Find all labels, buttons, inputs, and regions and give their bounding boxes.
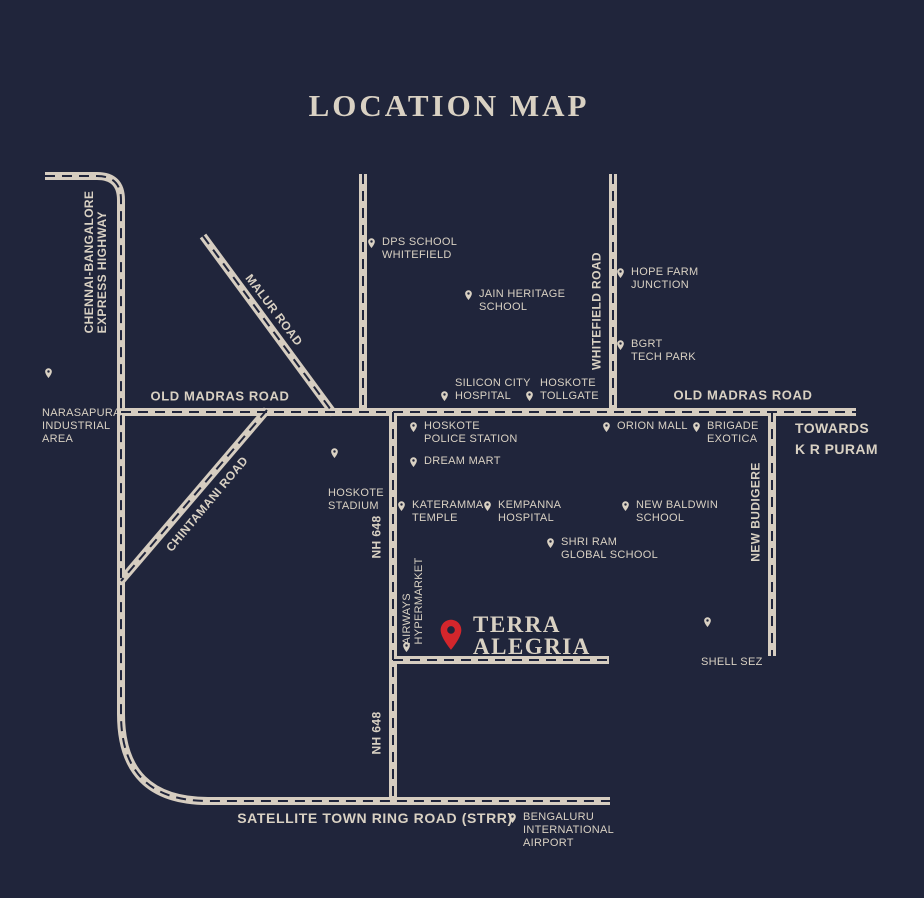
poi-dream-mart: DREAM MART [408,455,501,469]
location-pin-icon [615,266,626,280]
poi-orion-mall: ORION MALL [601,420,688,434]
poi-label: SHELL SEZ [701,656,763,669]
location-pin-icon [463,288,474,302]
location-pin-icon [439,389,450,403]
poi-label: HOSKOTE TOLLGATE [540,377,599,403]
road-label-old-madras-east: OLD MADRAS ROAD [674,388,813,403]
poi-label: DREAM MART [424,455,501,468]
poi-label: SILICON CITY HOSPITAL [455,377,531,403]
poi-kateramma-temple: KATERAMMA TEMPLE [396,499,484,525]
poi-dps-school: DPS SCHOOL WHITEFIELD [366,236,457,262]
location-pin-icon [691,420,702,434]
poi-shri-ram-global-school: SHRI RAM GLOBAL SCHOOL [545,536,658,562]
poi-label: JAIN HERITAGE SCHOOL [479,288,565,314]
poi-jain-heritage-school: JAIN HERITAGE SCHOOL [463,288,565,314]
poi-hoskote-police-station: HOSKOTE POLICE STATION [408,420,518,446]
poi-hope-farm-junction: HOPE FARM JUNCTION [615,266,699,292]
poi-label: NARASAPURA INDUSTRIAL AREA [42,407,121,446]
terra-alegria-label: TERRA ALEGRIA [473,614,591,658]
poi-label: BGRT TECH PARK [631,338,696,364]
poi-hoskote-stadium: HOSKOTE STADIUM [328,420,384,539]
poi-label: HOSKOTE POLICE STATION [424,420,518,446]
location-pin-icon [507,811,518,825]
poi-silicon-city-hospital: SILICON CITY HOSPITAL [439,377,531,403]
roads-layer [0,0,924,898]
label-towards-kr-puram: TOWARDS K R PURAM [795,418,878,460]
location-map: LOCATION MAP CHENNAI-BANGALORE EXPRESS [0,0,924,898]
poi-airways-hypermarket-label: AIRWAYS HYPERMARKET [401,557,425,644]
poi-bgrt-tech-park: BGRT TECH PARK [615,338,696,364]
road-label-new-budigere: NEW BUDIGERE [750,462,763,561]
location-pin-icon [408,420,419,434]
location-pin-icon [702,615,713,629]
location-pin-icon [620,499,631,513]
terra-alegria-pin-icon [434,611,468,658]
road-label-strr: SATELLITE TOWN RING ROAD (STRR) [237,810,513,826]
poi-label: NEW BALDWIN SCHOOL [636,499,718,525]
poi-label: HOPE FARM JUNCTION [631,266,699,292]
location-pin-icon [43,366,54,380]
poi-shell-sez: SHELL SEZ [701,589,763,695]
location-pin-icon [401,640,412,654]
location-pin-icon [615,338,626,352]
location-pin-icon [545,536,556,550]
location-pin-icon [601,420,612,434]
road-label-nh648-lower: NH 648 [371,711,384,754]
poi-label: BENGALURU INTERNATIONAL AIRPORT [523,811,614,850]
poi-label: KATERAMMA TEMPLE [412,499,484,525]
location-pin-icon [482,499,493,513]
location-pin-icon [524,389,535,403]
poi-label: ORION MALL [617,420,688,433]
poi-narasapura-industrial-area: NARASAPURA INDUSTRIAL AREA [42,340,121,472]
poi-label: SHRI RAM GLOBAL SCHOOL [561,536,658,562]
poi-hoskote-tollgate: HOSKOTE TOLLGATE [524,377,599,403]
road-label-old-madras-west: OLD MADRAS ROAD [151,389,290,404]
poi-kempanna-hospital: KEMPANNA HOSPITAL [482,499,561,525]
poi-label: KEMPANNA HOSPITAL [498,499,561,525]
location-pin-icon [396,499,407,513]
poi-label: DPS SCHOOL WHITEFIELD [382,236,457,262]
road-label-whitefield: WHITEFIELD ROAD [591,252,604,370]
location-pin-icon [329,446,340,460]
poi-label: HOSKOTE STADIUM [328,487,384,513]
poi-brigade-exotica: BRIGADE EXOTICA [691,420,759,446]
poi-new-baldwin-school: NEW BALDWIN SCHOOL [620,499,718,525]
location-pin-icon [408,455,419,469]
poi-label: BRIGADE EXOTICA [707,420,759,446]
location-pin-icon [366,236,377,250]
road-label-chennai-bangalore: CHENNAI-BANGALORE EXPRESS HIGHWAY [83,191,109,334]
poi-terra-alegria: TERRA ALEGRIA [434,611,591,658]
poi-bengaluru-international-airport: BENGALURU INTERNATIONAL AIRPORT [507,811,614,850]
